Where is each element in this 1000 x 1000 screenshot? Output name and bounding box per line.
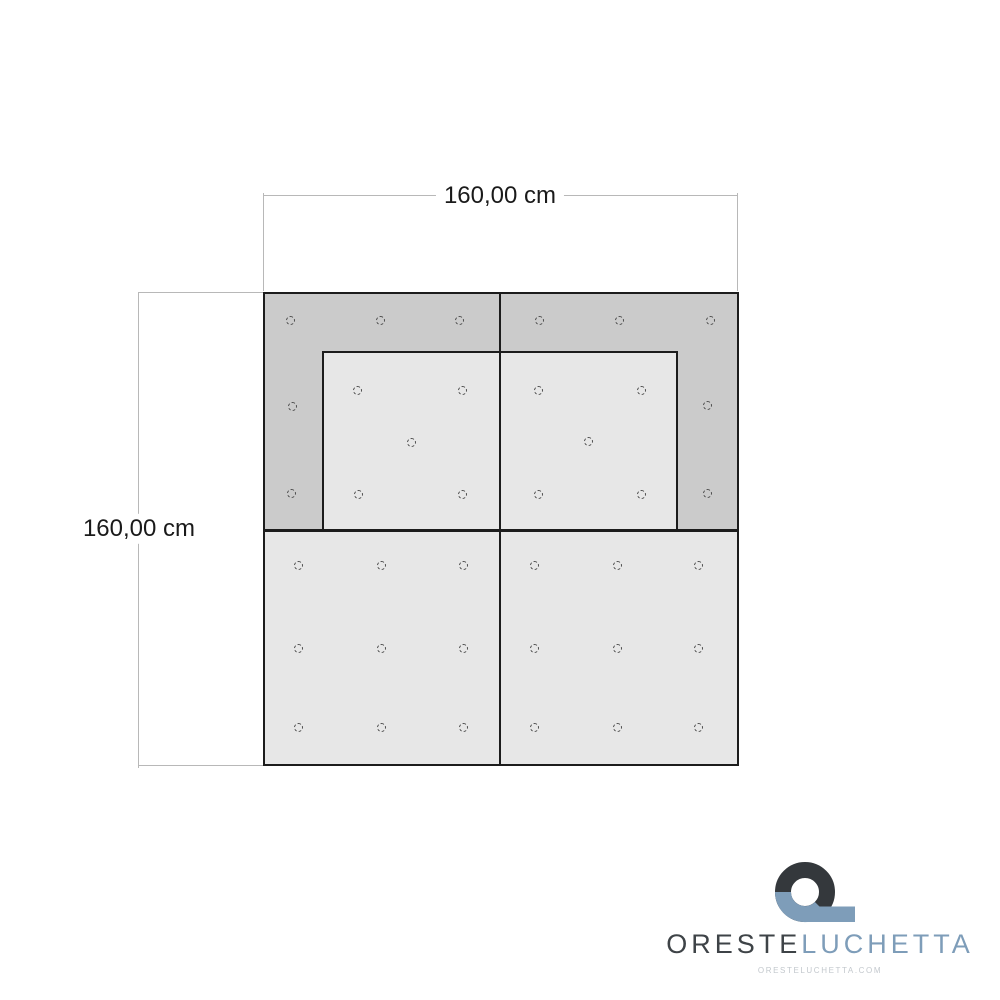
technical-drawing-page: 160,00 cm 160,00 cm ORESTELUCHETTA OREST… <box>0 0 1000 1000</box>
extension-line-top-left <box>263 193 264 291</box>
vertical-seam-line <box>499 292 501 766</box>
dimension-label-height: 160,00 cm <box>75 514 203 544</box>
extension-line-left-top <box>138 292 264 293</box>
brand-name-first: ORESTE <box>666 929 801 959</box>
dimension-label-width: 160,00 cm <box>436 181 564 211</box>
brand-name-second: LUCHETTA <box>801 929 974 959</box>
brand-website-url: ORESTELUCHETTA.COM <box>659 966 981 975</box>
brand-logo-q-icon <box>772 856 860 930</box>
horizontal-seam-line <box>263 529 739 532</box>
brand-wordmark: ORESTELUCHETTA <box>659 929 981 960</box>
extension-line-left-bottom <box>138 765 264 766</box>
extension-line-top-right <box>737 193 738 291</box>
